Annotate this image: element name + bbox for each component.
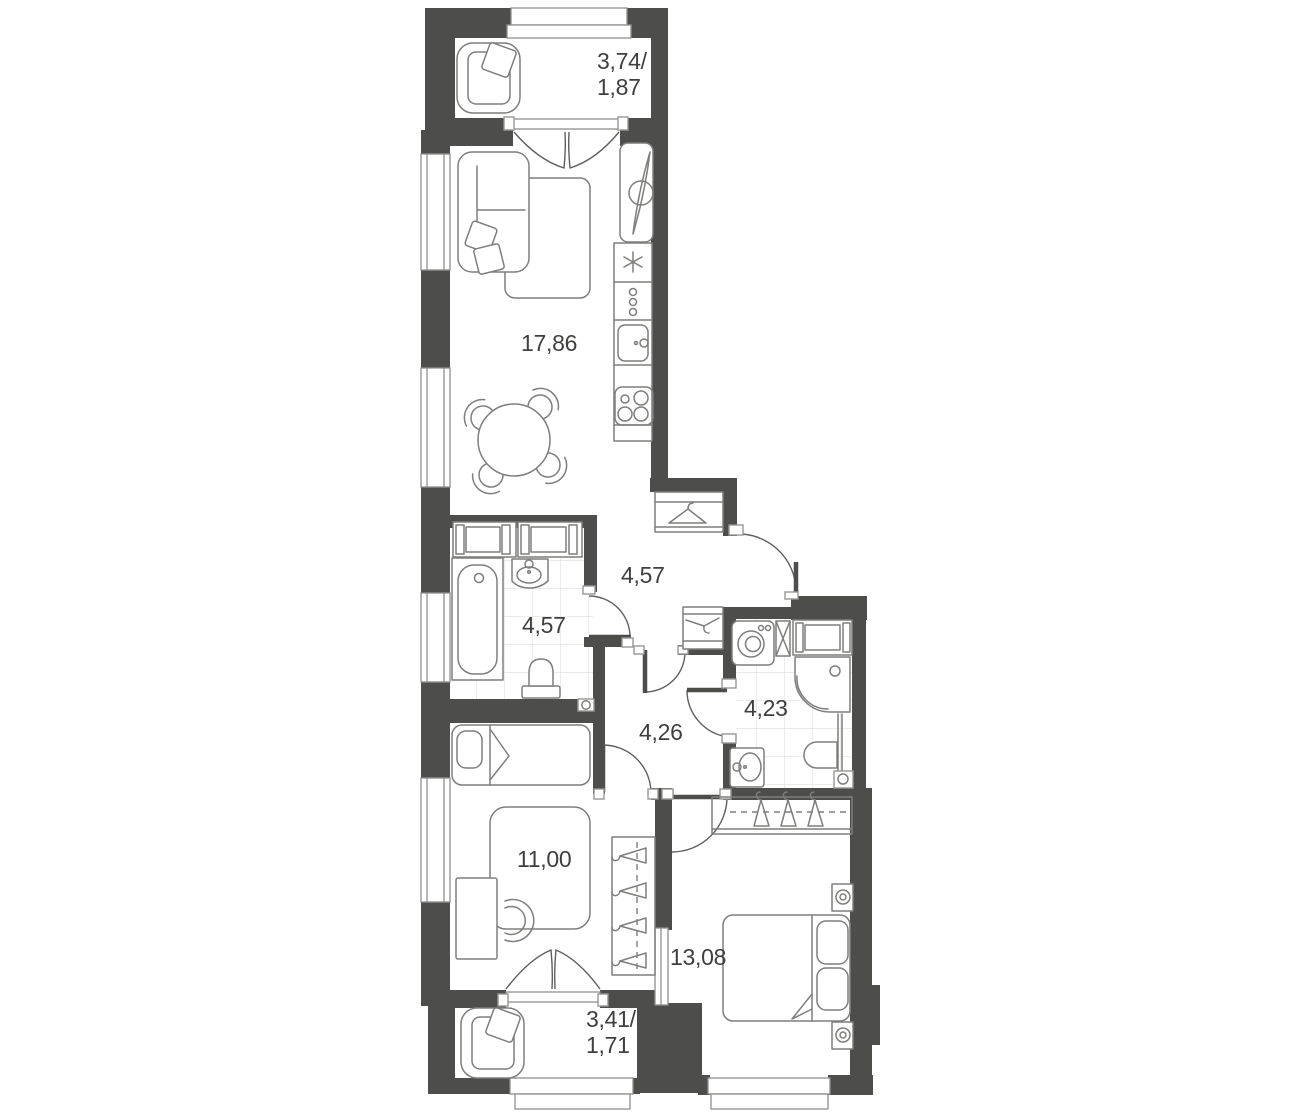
room-label-bathroom-second: 4,23 bbox=[744, 695, 788, 721]
floor-plan-drawing bbox=[0, 0, 1300, 1120]
wardrobe-cabinet-icon bbox=[655, 492, 723, 532]
double-bed-icon bbox=[723, 915, 850, 1021]
room-label-bedroom-master: 13,08 bbox=[670, 944, 726, 970]
room-label-bedroom-small: 11,00 bbox=[517, 846, 571, 872]
room-label-balcony-bottom: 3,41/ 1,71 bbox=[586, 1006, 636, 1058]
single-bed-icon bbox=[452, 725, 590, 785]
armchair-icon-bottom bbox=[461, 1007, 524, 1078]
coat-hanger-icon bbox=[683, 607, 723, 649]
armchair-icon bbox=[457, 42, 520, 113]
vent-icon-second bbox=[834, 771, 853, 788]
duct-icon bbox=[776, 621, 790, 656]
room-label-bathroom-main: 4,57 bbox=[522, 612, 566, 638]
bathroom-cabinets bbox=[453, 522, 582, 557]
room-label-inner-hall: 4,26 bbox=[639, 719, 683, 745]
washbasin-icon bbox=[512, 559, 548, 588]
bathroom-second-cabinet bbox=[793, 620, 852, 655]
room-label-balcony-top: 3,74/ 1,87 bbox=[597, 48, 647, 100]
washbasin-icon-second bbox=[730, 748, 764, 787]
bathtub-icon bbox=[452, 558, 503, 680]
nightstand-icon-2 bbox=[832, 1022, 853, 1049]
nightstand-icon bbox=[832, 884, 853, 911]
dining-table-icon bbox=[458, 382, 572, 499]
vent-icon bbox=[578, 699, 594, 711]
room-label-hallway: 4,57 bbox=[621, 562, 665, 588]
floor-plan-page: 3,74/ 1,87 17,86 4,57 4,57 4,26 4,23 11,… bbox=[0, 0, 1300, 1120]
washing-machine-icon bbox=[732, 621, 774, 665]
sofa-icon bbox=[458, 152, 529, 275]
toilet-icon-second bbox=[804, 742, 837, 768]
tv-unit-icon bbox=[620, 143, 653, 242]
desk-icon bbox=[456, 878, 534, 959]
hanger-rail-icon bbox=[612, 837, 655, 975]
room-label-living-kitchen: 17,86 bbox=[521, 330, 577, 356]
